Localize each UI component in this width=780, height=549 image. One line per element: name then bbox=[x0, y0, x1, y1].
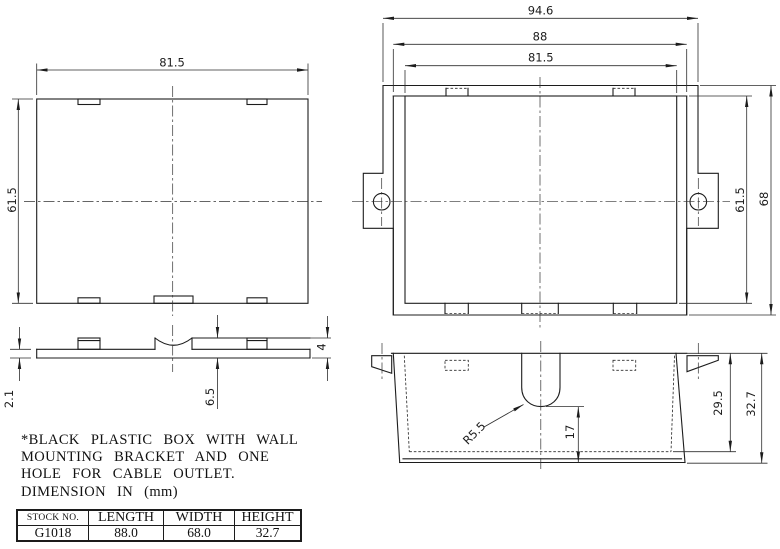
dim-label-overall-height: 32.7 bbox=[744, 391, 758, 417]
spec-value-length: 88.0 bbox=[89, 526, 164, 542]
snap-tab bbox=[613, 88, 635, 96]
spec-header-width: WIDTH bbox=[164, 510, 235, 526]
hidden-wall bbox=[404, 356, 409, 452]
snap-tab bbox=[446, 88, 468, 96]
dim-label-outlet-depth: 17 bbox=[563, 425, 577, 440]
dim-label-box-height: 61.5 bbox=[5, 187, 19, 213]
snap-tab bbox=[445, 303, 468, 313]
dimension-boss-height: 4 bbox=[310, 316, 331, 381]
dimension-overall-height: 32.7 bbox=[687, 353, 768, 463]
mounting-boss bbox=[247, 338, 267, 349]
note-line: DIMENSION IN (mm) bbox=[21, 484, 311, 501]
note-line: MOUNTING BRACKET AND ONE bbox=[21, 449, 311, 466]
dim-label-box-width: 81.5 bbox=[528, 51, 554, 65]
hidden-wall bbox=[671, 356, 675, 452]
note-line: HOLE FOR CABLE OUTLET. bbox=[21, 466, 311, 483]
dim-label-tab-height: 6.5 bbox=[203, 388, 217, 406]
bracket-plan-view: 94.6 88 81.5 61.5 68 bbox=[352, 4, 776, 331]
dim-label-box-height: 61.5 bbox=[733, 187, 747, 213]
dim-label-plate-width: 88 bbox=[533, 30, 548, 44]
release-tab bbox=[154, 296, 193, 303]
spec-table-header-row: STOCK NO. LENGTH WIDTH HEIGHT bbox=[17, 510, 301, 526]
spec-header-stock-no: STOCK NO. bbox=[17, 510, 89, 526]
box-front-view: R5.5 17 29.5 32.7 bbox=[372, 341, 768, 470]
note-line: *BLACK PLASTIC BOX WITH WALL bbox=[21, 432, 311, 449]
mounting-boss bbox=[78, 338, 100, 349]
hidden-tab bbox=[613, 360, 636, 370]
side-wall bbox=[393, 353, 399, 462]
radius-callout: R5.5 bbox=[460, 405, 524, 448]
box-plan-view: 81.5 61.5 bbox=[5, 56, 322, 317]
dimension-tab-height: 6.5 bbox=[203, 315, 218, 409]
box-outline bbox=[405, 96, 677, 303]
spec-table-data-row: G1018 88.0 68.0 32.7 bbox=[17, 526, 301, 542]
dimension-box-width: 81.5 bbox=[405, 51, 677, 93]
dim-label-corner-radius: R5.5 bbox=[460, 419, 488, 447]
spec-value-height: 32.7 bbox=[235, 526, 302, 542]
engineering-drawing-sheet: 81.5 61.5 bbox=[0, 0, 780, 549]
snap-tab bbox=[247, 298, 267, 304]
dim-label-overall-width: 94.6 bbox=[528, 4, 554, 18]
dimension-outlet-depth: 17 bbox=[546, 407, 584, 463]
dim-label-box-width: 81.5 bbox=[159, 56, 185, 70]
bracket-side-view: 2.1 6.5 4 bbox=[2, 315, 331, 409]
spec-table: STOCK NO. LENGTH WIDTH HEIGHT G1018 88.0… bbox=[16, 509, 302, 542]
dim-label-plate-height: 68 bbox=[757, 192, 771, 207]
dim-label-boss-height: 4 bbox=[315, 343, 329, 350]
finger-groove-arc bbox=[155, 338, 192, 345]
dim-label-inner-depth: 29.5 bbox=[711, 390, 725, 416]
spec-value-stock-no: G1018 bbox=[17, 526, 89, 542]
mounting-ear-right bbox=[687, 356, 718, 372]
snap-tab bbox=[247, 99, 267, 105]
spec-header-height: HEIGHT bbox=[235, 510, 302, 526]
snap-tab bbox=[78, 298, 100, 304]
snap-tab bbox=[613, 303, 636, 313]
side-wall bbox=[676, 353, 685, 462]
dimension-plate-thickness: 2.1 bbox=[2, 327, 31, 408]
hidden-tab bbox=[445, 360, 468, 370]
snap-tab bbox=[78, 99, 100, 105]
dim-label-plate-thickness: 2.1 bbox=[2, 390, 16, 408]
bracket-silhouette bbox=[363, 86, 718, 316]
drawing-note: *BLACK PLASTIC BOX WITH WALL MOUNTING BR… bbox=[21, 432, 311, 501]
spec-header-length: LENGTH bbox=[89, 510, 164, 526]
spec-value-width: 68.0 bbox=[164, 526, 235, 542]
